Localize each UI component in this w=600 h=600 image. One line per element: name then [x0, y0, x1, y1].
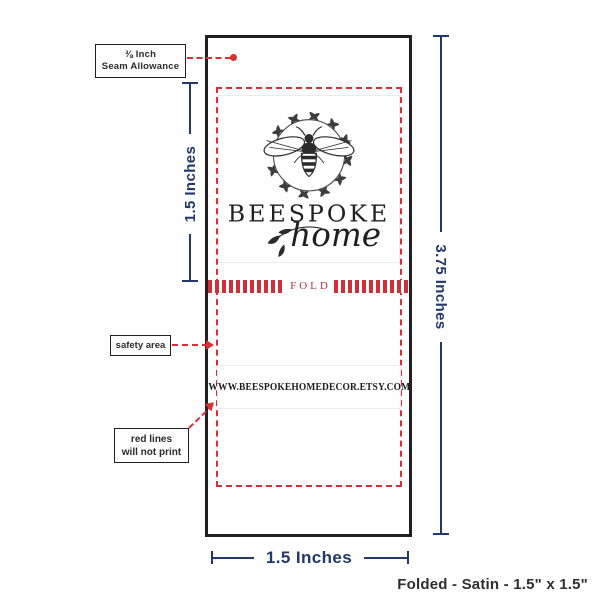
panel-height-measure-label: 1.5 Inches — [177, 134, 203, 234]
product-variant-caption: Folded - Satin - 1.5" x 1.5" — [397, 576, 588, 593]
brand-script: home — [290, 216, 381, 254]
website-url-text: WWW.BEESPOKEHOMEDECOR.ETSY.COM — [208, 381, 410, 393]
seam-allowance-arrow-dot — [230, 54, 237, 61]
safety-area-arrowhead-icon — [206, 340, 214, 350]
width-measure-label: 1.5 Inches — [254, 543, 364, 572]
width-measure-cap-left — [211, 551, 213, 564]
total-height-measure-label: 3.75 Inches — [428, 232, 454, 342]
seam-allowance-line2: Seam Allowance — [102, 61, 179, 73]
seam-allowance-arrow — [187, 57, 231, 59]
website-box: WWW.BEESPOKEHOMEDECOR.ETSY.COM — [217, 365, 401, 409]
seam-allowance-callout: ⅜ Inch Seam Allowance — [95, 44, 186, 78]
bee-wreath-logo-icon: BEESPOKE home — [219, 96, 399, 262]
logo-box: BEESPOKE home — [218, 95, 400, 263]
total-height-measure-cap-bottom — [433, 533, 449, 535]
total-height-measure-cap-top — [433, 35, 449, 37]
label-size-diagram: BEESPOKE home FOLD WWW.BEESPOKEHOMEDECOR… — [0, 0, 600, 600]
safety-area-label: safety area — [116, 340, 166, 351]
red-lines-line2: will not print — [122, 446, 181, 459]
safety-area-arrow — [172, 344, 208, 346]
fold-line-band: FOLD — [208, 280, 409, 293]
seam-allowance-line1: ⅜ Inch — [125, 49, 156, 61]
safety-area-callout: safety area — [110, 335, 171, 356]
red-lines-callout: red lines will not print — [114, 428, 189, 463]
fold-label: FOLD — [284, 279, 333, 293]
red-lines-line1: red lines — [131, 433, 172, 446]
panel-height-measure-cap-top — [182, 82, 198, 84]
width-measure-cap-right — [407, 551, 409, 564]
panel-height-measure-cap-bottom — [182, 280, 198, 282]
